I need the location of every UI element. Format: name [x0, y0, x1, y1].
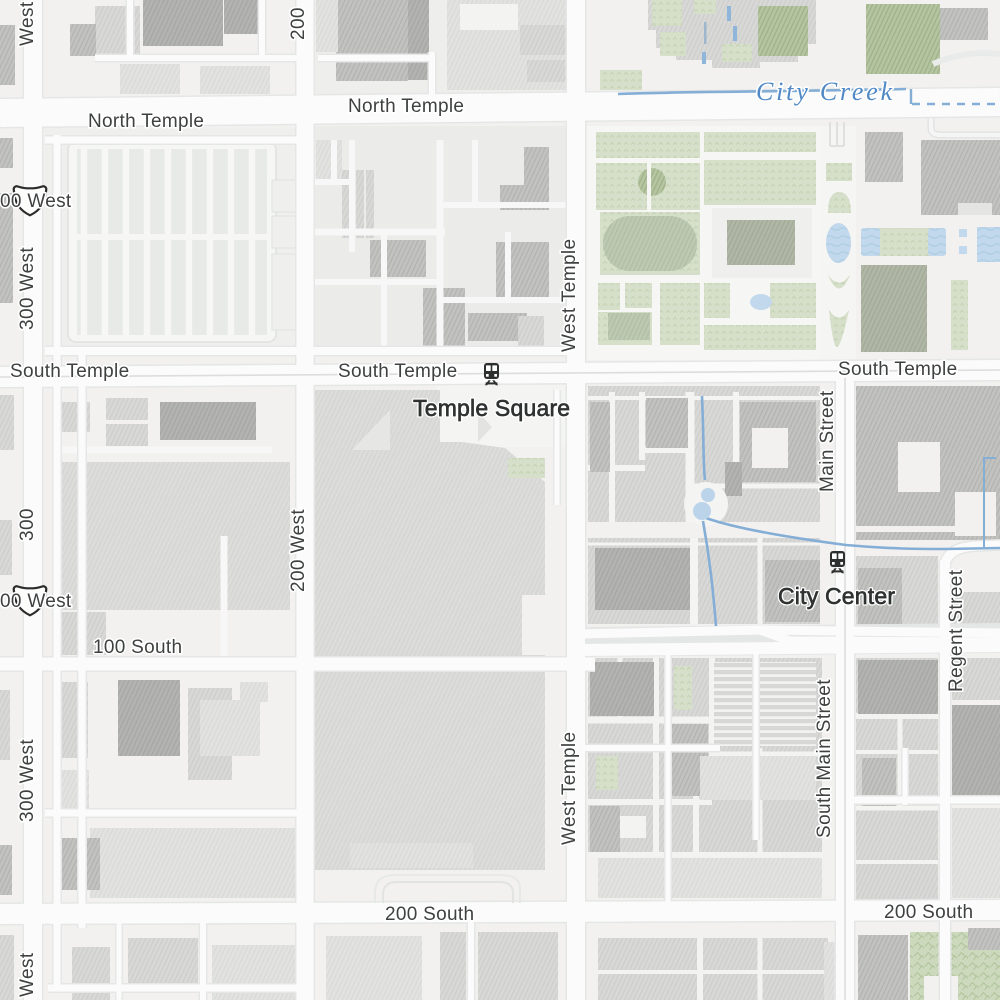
- svg-text:City Creek: City Creek: [756, 77, 895, 106]
- svg-text:West Temple: West Temple: [559, 238, 580, 352]
- svg-text:South Temple: South Temple: [838, 359, 957, 380]
- svg-text:West: West: [17, 952, 38, 997]
- svg-text:North Temple: North Temple: [88, 111, 204, 132]
- svg-text:100 South: 100 South: [93, 637, 182, 658]
- svg-text:West Temple: West Temple: [559, 731, 580, 845]
- svg-text:200 South: 200 South: [385, 904, 474, 925]
- svg-text:200: 200: [288, 7, 309, 40]
- svg-text:300 West: 300 West: [17, 247, 38, 330]
- svg-text:200 West: 200 West: [288, 509, 309, 592]
- svg-text:Main Street: Main Street: [817, 390, 838, 492]
- svg-text:Temple Square: Temple Square: [413, 395, 570, 421]
- svg-text:00 West: 00 West: [0, 591, 72, 612]
- svg-text:00 West: 00 West: [0, 191, 72, 212]
- svg-text:City Center: City Center: [778, 583, 895, 609]
- svg-text:200 South: 200 South: [884, 902, 973, 923]
- svg-text:Regent Street: Regent Street: [946, 569, 967, 692]
- svg-text:300: 300: [17, 508, 38, 541]
- svg-text:South Temple: South Temple: [338, 361, 457, 382]
- svg-text:300 West: 300 West: [17, 739, 38, 822]
- svg-text:South Main Street: South Main Street: [814, 679, 835, 838]
- svg-text:North Temple: North Temple: [348, 96, 464, 117]
- svg-text:West: West: [17, 1, 38, 46]
- svg-text:South Temple: South Temple: [10, 361, 129, 382]
